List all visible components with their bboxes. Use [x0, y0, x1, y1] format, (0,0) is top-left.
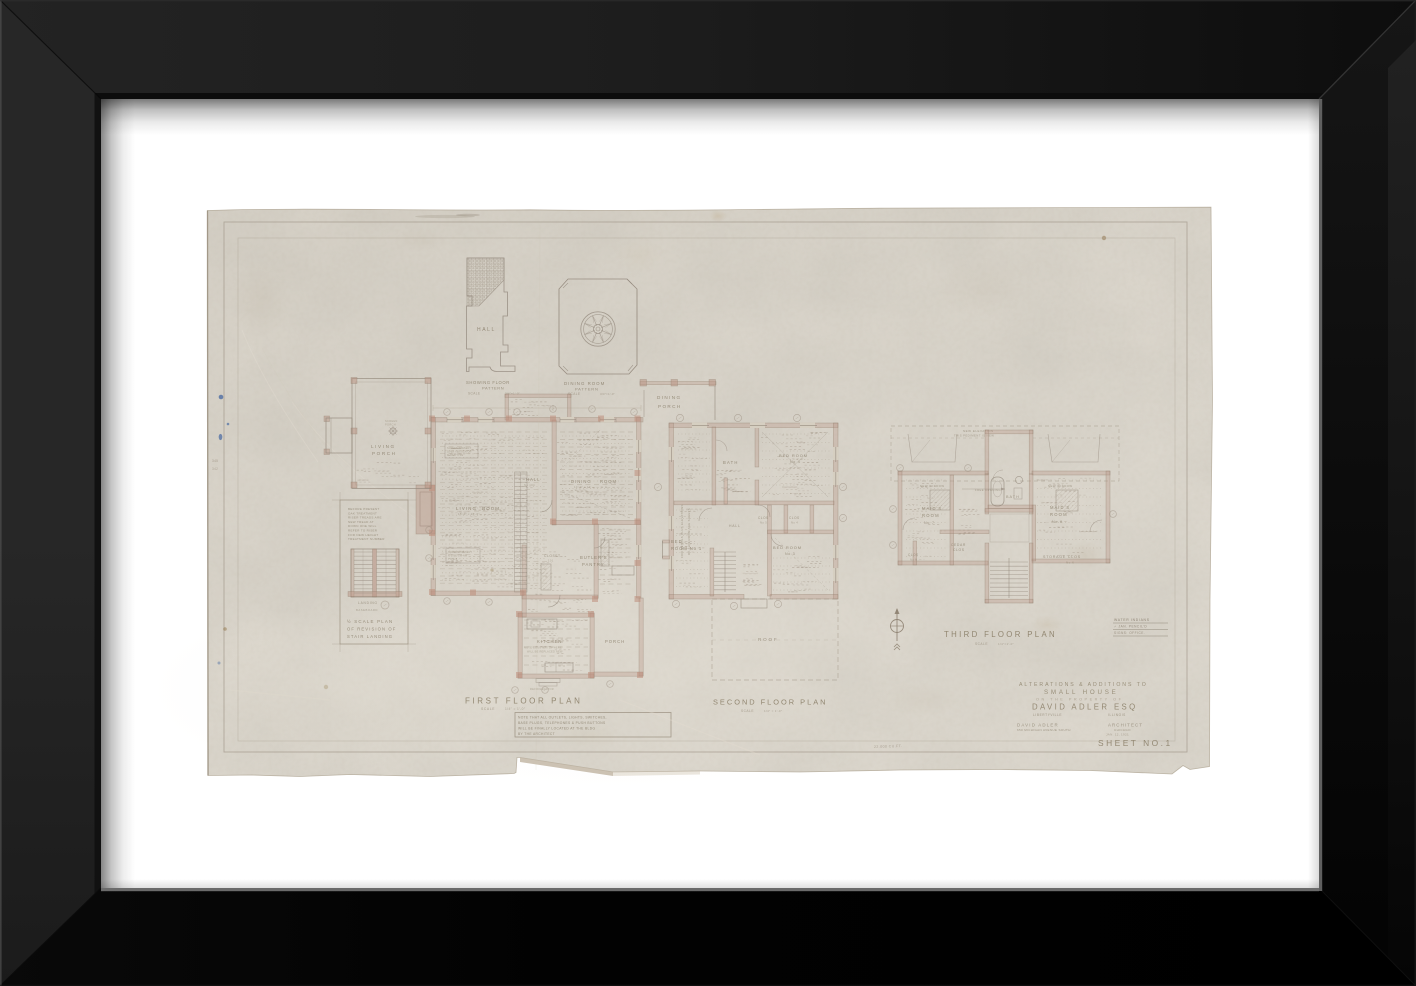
svg-text:PORCH: PORCH [658, 404, 682, 409]
svg-text:ALTERATIONS & ADDITIONS TO: ALTERATIONS & ADDITIONS TO [1019, 682, 1148, 688]
svg-text:REFRIGERATOR: REFRIGERATOR [530, 687, 554, 691]
svg-text:BATH: BATH [1006, 495, 1020, 499]
svg-text:HALL: HALL [729, 524, 741, 528]
svg-text:No 3: No 3 [785, 552, 795, 556]
svg-text:THIRD FLOOR PLAN: THIRD FLOOR PLAN [944, 630, 1057, 639]
svg-text:ON THE PROPERTY OF: ON THE PROPERTY OF [1036, 698, 1123, 702]
svg-text:BATH: BATH [723, 460, 739, 465]
svg-text:650 MICHIGAN AVENUE SOUTH: 650 MICHIGAN AVENUE SOUTH [1017, 728, 1071, 732]
svg-text:½ SCALE PLAN: ½ SCALE PLAN [347, 619, 393, 624]
svg-text:3/4″=1′-0″: 3/4″=1′-0″ [600, 392, 615, 396]
svg-text:ILLINOIS: ILLINOIS [1108, 713, 1126, 717]
svg-text:NOTE COUNTERTOP HERE: NOTE COUNTERTOP HERE [524, 646, 562, 650]
svg-text:CEDAR: CEDAR [951, 543, 966, 547]
svg-text:DAVID ADLER ESQ: DAVID ADLER ESQ [1032, 703, 1138, 712]
svg-text:ARCHITECT: ARCHITECT [1108, 723, 1143, 728]
svg-text:HALL: HALL [477, 327, 496, 333]
svg-text:WILL BE REPLACED NEW: WILL BE REPLACED NEW [527, 650, 563, 654]
svg-text:TYPE B: TYPE B [448, 558, 458, 561]
svg-text:ROOM: ROOM [600, 479, 617, 484]
svg-text:KITCHEN: KITCHEN [537, 639, 562, 644]
svg-text:345: 345 [212, 459, 218, 463]
svg-text:FLUSH TYPE: FLUSH TYPE [447, 454, 463, 457]
svg-text:NEW WINDOW: NEW WINDOW [920, 484, 945, 488]
svg-text:WATER INDIANS: WATER INDIANS [1114, 618, 1150, 622]
svg-text:PORCH: PORCH [605, 639, 625, 644]
svg-text:CLOS: CLOS [789, 516, 800, 520]
svg-text:SHEET NO.1: SHEET NO.1 [1098, 738, 1173, 748]
svg-text:342: 342 [212, 467, 218, 471]
svg-text:LIVING: LIVING [456, 506, 477, 511]
svg-text:14′-0″ x 17′: 14′-0″ x 17′ [574, 485, 591, 489]
svg-text:BED ROOM: BED ROOM [773, 545, 802, 550]
svg-text:No 5: No 5 [760, 521, 767, 525]
svg-text:ROOM: ROOM [482, 506, 500, 511]
svg-text:JAN. 12, 1921: JAN. 12, 1921 [1106, 733, 1129, 737]
svg-text:ROOM: ROOM [1050, 512, 1068, 517]
svg-text:STORAGE CLOS: STORAGE CLOS [1043, 555, 1081, 559]
svg-text:DINING: DINING [571, 479, 592, 484]
svg-text:DAVID ADLER: DAVID ADLER [1017, 723, 1059, 728]
svg-text:NEW WINDOW: NEW WINDOW [1048, 484, 1073, 488]
svg-text:LANDING: LANDING [358, 601, 378, 605]
svg-text:SCALE: SCALE [741, 709, 754, 713]
svg-text:CHICAGO: CHICAGO [1114, 728, 1131, 732]
svg-text:PATTERN: PATTERN [482, 386, 504, 391]
svg-text:1/4″ = 1′-0″: 1/4″ = 1′-0″ [764, 709, 782, 713]
svg-text:No 4: No 4 [791, 521, 798, 525]
svg-text:SMALL HOUSE: SMALL HOUSE [1044, 689, 1119, 696]
svg-text:1/4″ = 1′-0″: 1/4″ = 1′-0″ [505, 707, 526, 711]
svg-text:BED ROOM: BED ROOM [779, 453, 808, 458]
svg-text:101: 101 [548, 559, 554, 563]
svg-text:1/4″=1′-0″: 1/4″=1′-0″ [998, 642, 1014, 646]
svg-text:FIRST FLOOR PLAN: FIRST FLOOR PLAN [465, 697, 582, 706]
svg-text:DINING ROOM: DINING ROOM [564, 381, 605, 386]
svg-text:STAIR LANDING: STAIR LANDING [347, 634, 393, 639]
svg-text:PORCH: PORCH [385, 423, 396, 427]
svg-text:SCALE: SCALE [481, 707, 495, 711]
svg-text:SHOWING FLOOR: SHOWING FLOOR [466, 380, 510, 385]
svg-text:DINING: DINING [657, 395, 681, 400]
svg-text:CLOS: CLOS [953, 548, 965, 552]
svg-text:NOTE THAT ALL OUTLETS, LIGHTS,: NOTE THAT ALL OUTLETS, LIGHTS, SWITCHES, [518, 716, 607, 720]
svg-text:ROOF: ROOF [758, 637, 778, 642]
svg-text:SIGNS: OFFICE.: SIGNS: OFFICE. [1114, 631, 1145, 635]
svg-text:OF REVISION OF: OF REVISION OF [347, 627, 396, 632]
svg-text:WILL BE FINALLY LOCATED AT THE: WILL BE FINALLY LOCATED AT THE BLDG [518, 727, 595, 731]
svg-text:No 8: No 8 [1052, 520, 1063, 524]
svg-text:BASEBOARD: BASEBOARD [356, 608, 378, 612]
svg-text:SECOND FLOOR PLAN: SECOND FLOOR PLAN [713, 698, 828, 707]
svg-text:PORCH: PORCH [372, 451, 397, 456]
svg-text:SCREEN: SCREEN [385, 419, 398, 423]
svg-text:FREE OPENING: FREE OPENING [975, 488, 1001, 492]
svg-text:✓ JAN. PENCIL’D: ✓ JAN. PENCIL’D [1114, 625, 1147, 629]
svg-text:BASE PLUGS, TELEPHONES & PUSH: BASE PLUGS, TELEPHONES & PUSH BUTTONS [518, 721, 606, 725]
svg-text:LIVING: LIVING [371, 444, 396, 449]
svg-text:FOR DETAILS PLUS ELEVATIONS: FOR DETAILS PLUS ELEVATIONS [680, 504, 684, 558]
svg-text:CLOSET: CLOSET [544, 554, 561, 558]
svg-text:15′-0″ x 28′-6″: 15′-0″ x 28′-6″ [458, 512, 480, 516]
svg-text:No 6: No 6 [1066, 561, 1074, 565]
svg-text:CLOS: CLOS [758, 516, 769, 520]
svg-text:LIBERTYVILLE: LIBERTYVILLE [1033, 713, 1062, 717]
svg-text:SCALE: SCALE [468, 392, 480, 396]
svg-text:SCALE: SCALE [975, 642, 988, 646]
svg-text:TREATMENT NUMBER: TREATMENT NUMBER [348, 537, 385, 541]
svg-text:PATTERN: PATTERN [575, 387, 599, 392]
